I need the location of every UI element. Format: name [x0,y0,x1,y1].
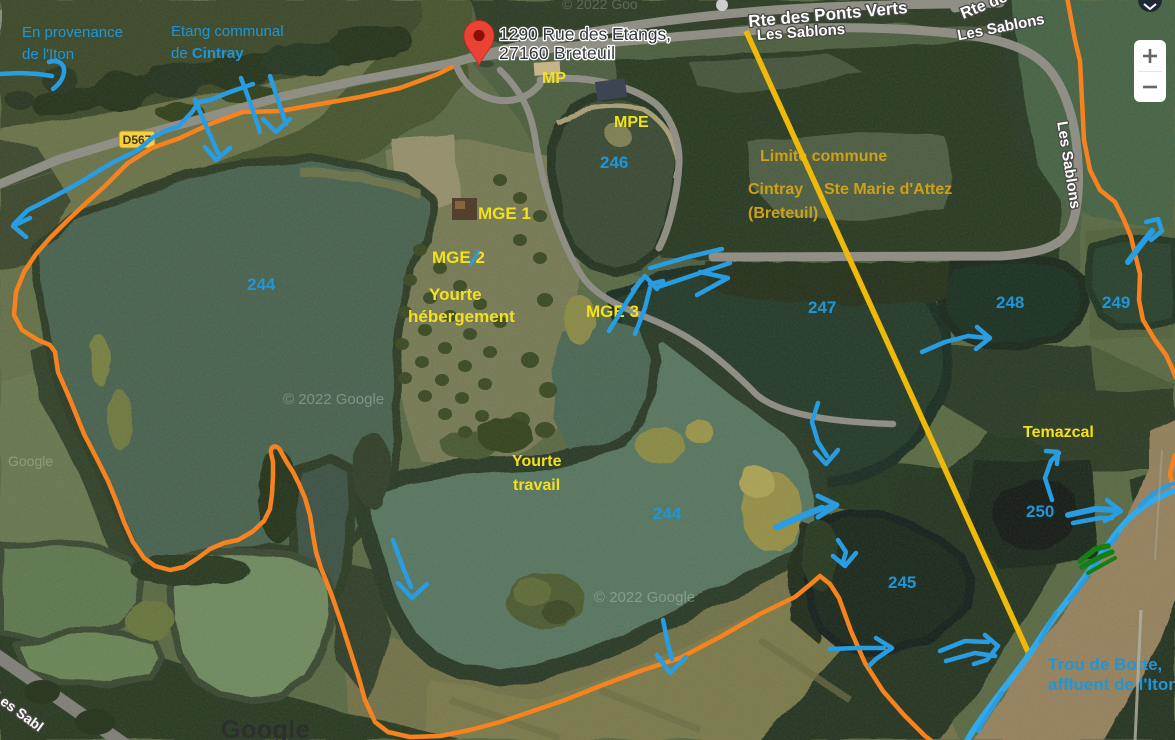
svg-text:© 2022 Goo: © 2022 Goo [562,0,638,12]
svg-text:27160 Breteuil: 27160 Breteuil [499,43,615,63]
svg-text:En provenance: En provenance [22,24,123,41]
svg-text:Yourte: Yourte [429,285,482,304]
svg-text:Yourte: Yourte [512,453,562,470]
svg-text:249: 249 [1102,293,1130,312]
svg-text:Etang communal: Etang communal [171,23,284,40]
svg-text:Ste Marie d'Attez: Ste Marie d'Attez [824,181,952,198]
svg-text:1290 Rue des Etangs,: 1290 Rue des Etangs, [499,24,671,44]
svg-text:Limite commune: Limite commune [760,148,887,165]
svg-text:MPE: MPE [614,114,649,131]
svg-text:Temazcal: Temazcal [1023,424,1094,441]
svg-text:MGE 3: MGE 3 [586,302,639,321]
svg-text:Trou de Botte,: Trou de Botte, [1048,655,1162,674]
svg-text:245: 245 [888,573,916,592]
svg-text:Cintray: Cintray [748,181,803,198]
svg-text:MP: MP [542,70,566,87]
svg-text:Google: Google [221,716,310,740]
svg-text:MGE 1: MGE 1 [478,204,531,223]
svg-text:affluent de l'Iton: affluent de l'Iton [1048,675,1175,694]
svg-text:Google: Google [8,453,53,469]
svg-text:248: 248 [996,293,1024,312]
svg-text:hébergement: hébergement [408,307,515,326]
svg-text:© 2022 Google: © 2022 Google [283,391,384,408]
svg-text:247: 247 [808,298,836,317]
svg-text:250: 250 [1026,502,1054,521]
svg-text:246: 246 [600,153,628,172]
svg-text:244: 244 [247,275,276,294]
svg-text:(Breteuil): (Breteuil) [748,205,818,222]
svg-text:travail: travail [513,477,560,494]
svg-text:244: 244 [653,504,682,523]
svg-text:de Cintray: de Cintray [171,45,244,62]
svg-text:© 2022 Google: © 2022 Google [594,589,695,606]
